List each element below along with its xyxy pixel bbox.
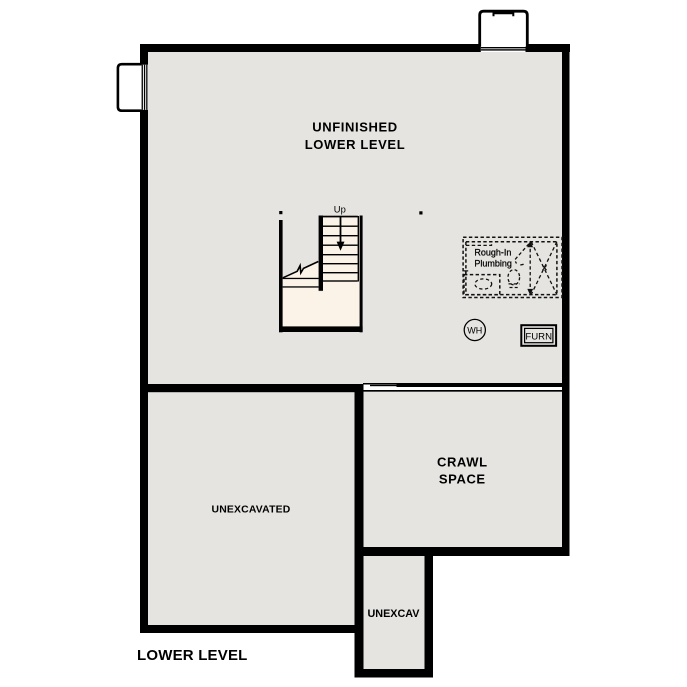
svg-text:UNEXCAV: UNEXCAV xyxy=(368,608,421,620)
svg-text:UNEXCAVATED: UNEXCAVATED xyxy=(212,505,291,516)
svg-text:LOWER LEVEL: LOWER LEVEL xyxy=(137,647,248,664)
svg-text:Rough-In: Rough-In xyxy=(474,248,511,258)
svg-text:Plumbing: Plumbing xyxy=(474,258,512,268)
svg-text:SPACE: SPACE xyxy=(439,471,486,486)
svg-text:LOWER LEVEL: LOWER LEVEL xyxy=(305,137,406,152)
svg-text:FURN: FURN xyxy=(525,332,552,343)
svg-text:UNFINISHED: UNFINISHED xyxy=(312,120,397,135)
svg-text:Up: Up xyxy=(334,204,346,215)
svg-text:CRAWL: CRAWL xyxy=(437,454,488,469)
svg-text:WH: WH xyxy=(467,325,482,335)
